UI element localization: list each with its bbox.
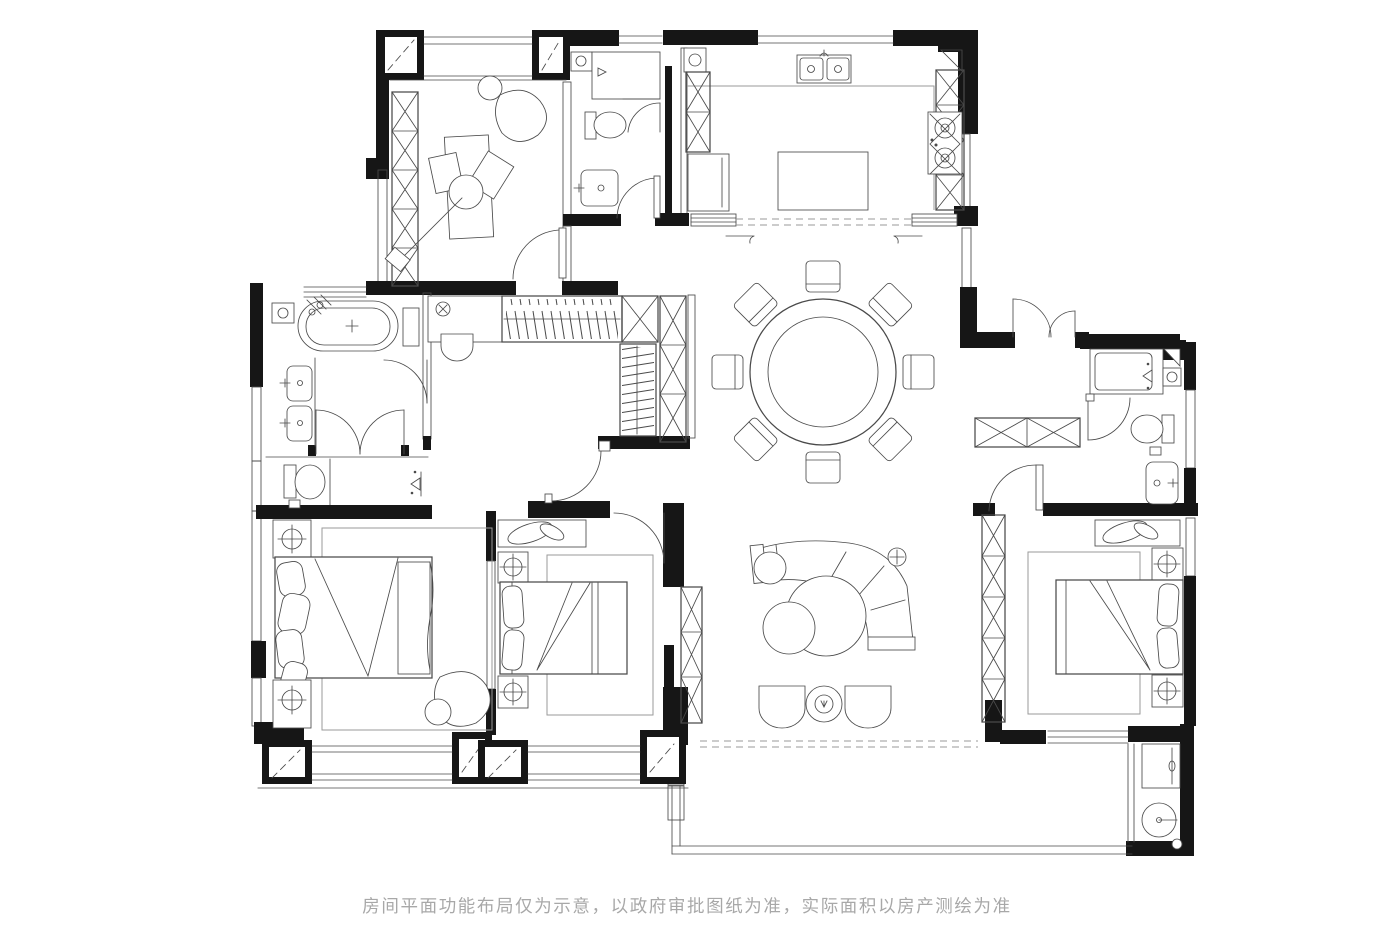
fridge bbox=[688, 154, 729, 211]
bed bbox=[1056, 580, 1183, 674]
corner-unit bbox=[272, 303, 294, 323]
bath-double-doors bbox=[316, 410, 404, 454]
corner-sink-unit bbox=[684, 48, 706, 72]
side-table bbox=[754, 552, 786, 584]
bedroom-2 bbox=[498, 513, 664, 715]
armchair bbox=[425, 672, 490, 727]
closet-x-cell bbox=[622, 296, 658, 342]
foyer-cabinet bbox=[975, 418, 1080, 447]
master-bedroom bbox=[273, 520, 492, 730]
bench-with-plant bbox=[498, 517, 586, 548]
living-room bbox=[681, 515, 1005, 747]
dining-room bbox=[712, 261, 934, 483]
bath-entry-door bbox=[384, 360, 427, 403]
bathroom-3 bbox=[1086, 349, 1181, 504]
floor-plan-page: 房间平面功能布局仅为示意，以政府审批图纸为准，实际面积以房产测绘为准 bbox=[0, 0, 1400, 933]
shower-area bbox=[1090, 349, 1163, 394]
desk bbox=[385, 135, 514, 272]
armchair bbox=[478, 76, 547, 142]
cabinet-right bbox=[982, 515, 1005, 722]
study-door bbox=[513, 228, 566, 279]
kitchen bbox=[684, 48, 964, 243]
toilet bbox=[1131, 415, 1174, 455]
bathtub bbox=[298, 295, 419, 351]
entry-foyer bbox=[975, 299, 1080, 447]
nightstand bbox=[273, 520, 311, 558]
suite-entry-door bbox=[545, 441, 610, 503]
bathroom-2 bbox=[571, 52, 660, 218]
balcony bbox=[668, 744, 1182, 854]
kitchen-sliding-door bbox=[691, 214, 957, 243]
study-room bbox=[385, 76, 566, 286]
armchair-pair bbox=[759, 686, 891, 728]
bed bbox=[275, 557, 433, 695]
kitchen-island bbox=[778, 152, 868, 210]
master-bathroom bbox=[272, 295, 427, 508]
bed bbox=[500, 582, 627, 674]
toilet bbox=[284, 465, 325, 508]
entry-double-door bbox=[1013, 299, 1075, 337]
disclaimer-text: 房间平面功能布局仅为示意，以政府审批图纸为准，实际面积以房产测绘为准 bbox=[362, 893, 1011, 918]
nightstand bbox=[1152, 675, 1183, 707]
closet-cabinet-column bbox=[660, 296, 686, 442]
hanging-closet-top bbox=[502, 296, 622, 342]
bay-window-box bbox=[378, 30, 570, 80]
nightstand bbox=[1152, 548, 1183, 580]
bench-with-plant bbox=[1095, 516, 1180, 547]
bay-window-box bbox=[478, 730, 686, 784]
floor-plan-svg bbox=[0, 0, 1400, 933]
bathroom2-door bbox=[617, 176, 660, 218]
gas-stove bbox=[928, 112, 962, 174]
double-sink bbox=[797, 50, 851, 83]
walk-in-closet bbox=[428, 296, 686, 503]
vanity-sinks bbox=[280, 358, 315, 446]
toilet bbox=[585, 112, 626, 139]
sink bbox=[1146, 462, 1178, 504]
bathroom3-door bbox=[1086, 394, 1130, 440]
sink bbox=[574, 170, 618, 206]
nightstand bbox=[498, 552, 528, 583]
laundry-cabinet bbox=[1142, 744, 1180, 788]
shower-head-icon bbox=[411, 471, 421, 496]
kitchen-cabinet-left bbox=[686, 72, 710, 152]
nightstand bbox=[273, 680, 311, 728]
hanging-closet-right bbox=[620, 344, 656, 436]
bedroom3-door bbox=[989, 465, 1043, 511]
balcony-sliding-door bbox=[700, 741, 978, 747]
dressing-table bbox=[428, 296, 502, 361]
nightstand bbox=[498, 676, 528, 708]
washbasin-unit bbox=[571, 52, 592, 71]
coffee-tables bbox=[763, 576, 866, 656]
